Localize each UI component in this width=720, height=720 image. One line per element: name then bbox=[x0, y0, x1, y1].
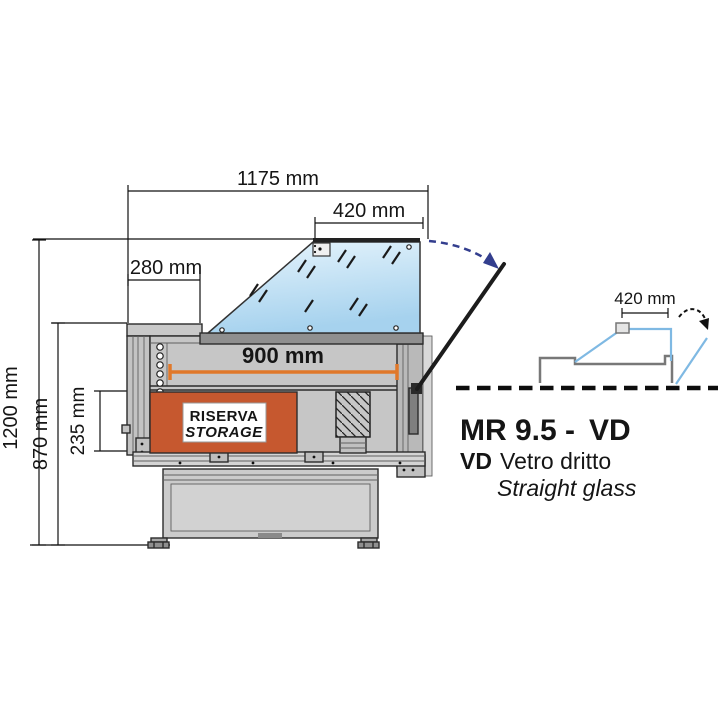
dim-total-height-label: 1200 mm bbox=[0, 366, 22, 449]
side-profile-view: 420 mm bbox=[456, 289, 718, 388]
side-open-glass-line bbox=[676, 338, 707, 384]
glass-opening bbox=[417, 241, 504, 389]
glass-assembly bbox=[200, 240, 423, 344]
side-opening-arrowhead-icon bbox=[699, 318, 709, 330]
storage-label-line1: RISERVA bbox=[190, 408, 259, 425]
side-opening-arc bbox=[679, 309, 706, 321]
pivot-slot bbox=[409, 388, 418, 434]
side-dim-label: 420 mm bbox=[614, 289, 675, 308]
model-name: MR 9.5 - bbox=[460, 414, 575, 447]
model-variant: VD bbox=[589, 414, 631, 447]
right-foot bbox=[358, 538, 379, 548]
variant-desc-italian: Vetro dritto bbox=[500, 448, 611, 474]
open-glass-line bbox=[417, 264, 504, 389]
title-block: MR 9.5 - VD VD Vetro dritto Straight gla… bbox=[460, 414, 637, 501]
dim-glass-top-label: 420 mm bbox=[333, 200, 405, 222]
storage-zone: RISERVA STORAGE bbox=[150, 392, 297, 453]
left-wall-tab bbox=[122, 425, 130, 433]
technical-drawing: 1175 mm 420 mm 280 mm 1200 mm 870 mm bbox=[0, 0, 720, 720]
left-foot bbox=[148, 538, 169, 548]
dim-storage-height-label: 235 mm bbox=[68, 387, 89, 456]
refrigeration-unit-hatch bbox=[336, 392, 370, 453]
left-wall bbox=[127, 336, 150, 455]
dim-deck-label: 900 mm bbox=[242, 343, 324, 368]
variant-desc-english: Straight glass bbox=[497, 475, 637, 501]
dimension-glass-top-main: 420 mm bbox=[315, 200, 423, 241]
rear-ledge bbox=[127, 324, 202, 336]
dim-worktop-height-label: 870 mm bbox=[30, 398, 52, 470]
base-rails bbox=[133, 452, 425, 466]
dimension-storage-height: 235 mm bbox=[68, 387, 127, 456]
base-cabinet bbox=[163, 469, 378, 538]
opening-arrowhead-icon bbox=[483, 252, 499, 269]
storage-label-line2: STORAGE bbox=[185, 424, 263, 441]
dim-total-width-label: 1175 mm bbox=[237, 168, 319, 190]
glass-hinge-bracket bbox=[313, 243, 330, 256]
glass-bottom-frame bbox=[200, 333, 423, 344]
opening-arc-arrow bbox=[429, 241, 490, 262]
side-hinge-bracket bbox=[616, 323, 629, 333]
dim-rear-shelf-label: 280 mm bbox=[130, 257, 202, 279]
dimension-rear-shelf: 280 mm bbox=[128, 257, 202, 323]
spec-sheet: 1175 mm 420 mm 280 mm 1200 mm 870 mm bbox=[0, 0, 720, 720]
variant-code: VD bbox=[460, 448, 492, 474]
side-glass-outline bbox=[575, 329, 671, 362]
side-body-outline bbox=[540, 356, 672, 383]
